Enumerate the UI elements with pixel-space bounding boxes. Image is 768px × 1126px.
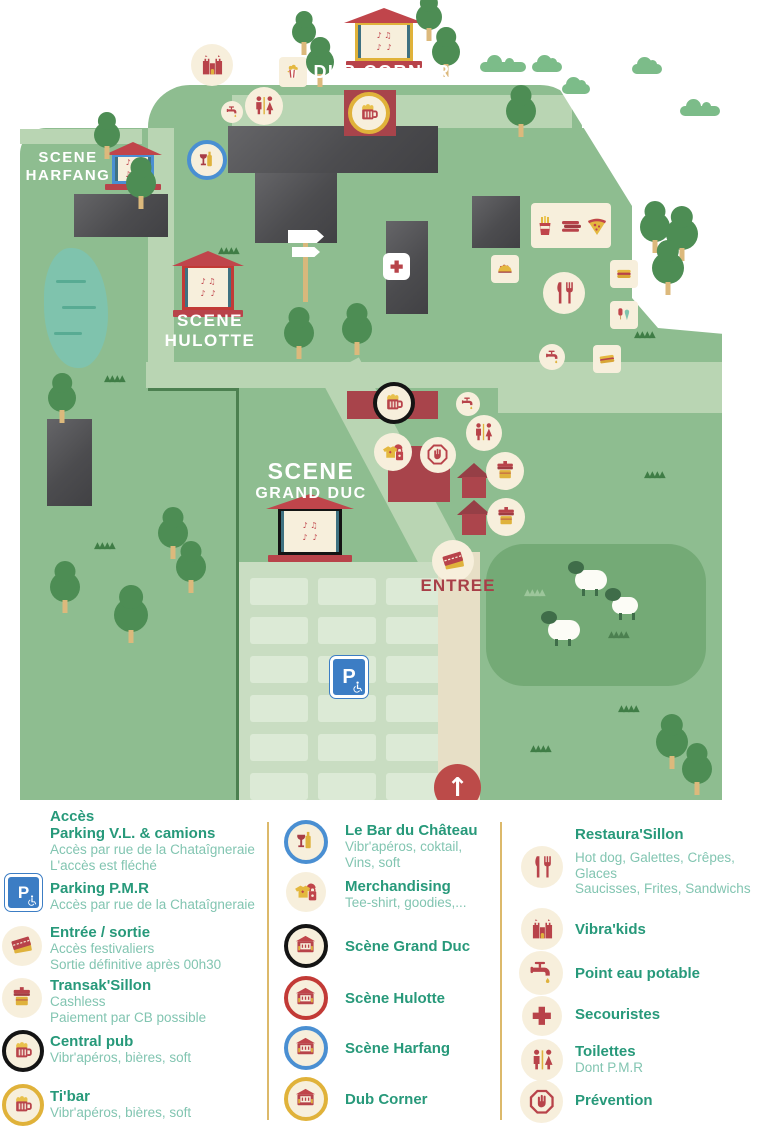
building-barn-left [74,194,168,237]
icecream-icon [615,306,633,324]
stage-grand-duc [266,494,354,562]
ticket-legend-icon [2,926,42,966]
stage-screen [278,508,341,555]
sheep-field [486,544,706,686]
tree [48,384,76,412]
hotdog-stand-icon [610,260,638,288]
sandwich-icon [598,350,616,368]
taco-icon [496,260,514,278]
parking-stall [318,734,376,761]
parking-stall [318,617,376,644]
food-banner [531,203,611,248]
scene-hulotte-label: SCENE HULOTTE [160,311,260,351]
legend-item-water: Point eau potable [575,965,768,982]
tree [652,252,684,284]
hotdog-icon [615,265,633,283]
stage-icon [294,986,317,1009]
cloud [532,62,562,72]
stage-icon [294,1087,317,1110]
wc-icon [252,94,276,118]
legend-divider [267,822,269,1120]
cashless-map-icon [486,452,524,490]
grass-tuft [644,470,664,480]
beer-mug-icon [358,102,380,124]
tap-icon [544,349,561,366]
grass-tuft [618,704,638,714]
path-right-horizontal [498,383,722,413]
pizza-icon [585,214,609,238]
parking-stall [386,656,444,683]
tree [176,552,206,582]
booth-icon [9,985,35,1011]
stage-roof [344,8,424,23]
wc-icon [529,1047,556,1074]
parking-pmr-sign: P [330,656,368,698]
tree [682,754,712,784]
tree [94,122,120,148]
tree [656,726,688,758]
legend-item-secouristes: Secouristes [575,1006,768,1023]
scene-grand-duc-legend-icon [284,924,328,968]
legend-item-scene-harfang: Scène Harfang [345,1040,495,1057]
zone-border-vertical [236,388,239,810]
map-white-right-margin [722,0,768,815]
signpost [288,228,328,302]
stop-hand-icon [426,443,449,466]
merch-icon [293,879,319,905]
legend-item-dub-corner: Dub Corner [345,1091,495,1108]
beer-mug-icon [12,1094,34,1116]
parking-stall [250,617,308,644]
restaura-legend-icon [521,846,563,888]
scene-grand-duc-label: SCENE GRAND DUC [255,458,367,504]
sheep [612,597,638,614]
legend-item-prevention: Prévention [575,1092,768,1109]
signpost-arrow [288,230,324,243]
icecream-stand-icon [610,301,638,329]
dub-corner-label: DUB CORNER [292,62,472,83]
parking-pmr-legend-icon: P [5,874,42,911]
stage-screen [182,265,234,310]
castle-icon [199,52,226,79]
stage-icon [294,1036,317,1059]
parking-stall [250,773,308,800]
parking-stall [318,695,376,722]
tree [342,314,372,344]
water-tap-central-icon [456,392,480,416]
first-aid-map-icon [383,253,410,280]
ticket-icon [440,548,467,575]
sheep [548,620,580,640]
water-tap-food-icon [539,344,565,370]
sheep [575,570,607,590]
castle-icon [529,916,556,943]
stage-screen [355,22,413,61]
red-cross-icon [529,1003,555,1029]
building-top-right [472,196,520,248]
ticket-icon [9,933,35,959]
house [457,500,491,535]
merch-icon [381,440,405,464]
stage-base [268,555,352,562]
wheelchair-icon [350,680,364,694]
tap-icon [460,396,475,411]
vibrakids-legend-icon [521,908,563,950]
legend-item-acces: Accès Parking V.L. & camions Accès par r… [50,808,265,873]
bar-chateau-map-icon [187,140,227,180]
parking-stall [386,695,444,722]
legend-item-scene-grand-duc: Scène Grand Duc [345,938,495,955]
central-pub-legend-icon [2,1030,44,1072]
merchandising-map-icon [374,433,412,471]
legend-item-toilettes: Toilettes Dont P.M.R [575,1043,768,1076]
cutlery-icon [551,280,578,307]
tibar-map-icon [348,92,390,134]
cloud [680,106,720,116]
parking-stall [250,656,308,683]
parking-stall [318,773,376,800]
taco-stand-icon [491,255,519,283]
secouristes-legend-icon [522,996,562,1036]
cloud [562,84,590,94]
prevention-legend-icon [520,1080,563,1123]
beer-mug-icon [12,1040,34,1062]
building-chateau-main [228,126,438,173]
scene-hulotte-legend-icon [284,976,328,1020]
legend-item-restaura-title: Restaura'Sillon [575,826,768,843]
zone-border-horizontal [148,388,239,391]
wine-icon [197,150,217,170]
parking-stall [318,578,376,605]
signpost-pole [303,236,308,302]
toilets-map-icon [245,87,283,125]
central-pub-map-icon [373,382,415,424]
cloud [632,64,662,74]
legend: Accès Parking V.L. & camions Accès par r… [0,800,768,1120]
tap-icon [225,105,239,119]
tap-icon [527,959,555,987]
tree [416,4,442,30]
restaurant-map-icon [543,272,585,314]
grass-tuft [634,330,654,340]
wc-icon [472,421,495,444]
fries-icon [533,214,557,238]
water-tap-map-icon [221,101,243,123]
wheelchair-icon [25,894,38,907]
red-cross-icon [388,258,405,275]
legend-item-transak: Transak'Sillon Cashless Paiement par CB … [50,977,265,1025]
parking-stall [250,578,308,605]
cloud [480,62,526,72]
parking-stall [386,734,444,761]
legend-item-entree-sortie: Entrée / sortie Accès festivaliers Sorti… [50,924,265,972]
legend-item-parking-pmr: Parking P.M.R Accès par rue de la Chataî… [50,880,265,913]
tree [506,96,536,126]
legend-item-scene-hulotte: Scène Hulotte [345,990,495,1007]
tree [126,168,156,198]
legend-item-central-pub: Central pub Vibr'apéros, bières, soft [50,1033,265,1066]
bar-chateau-legend-icon [284,820,328,864]
building-left-bottom [47,419,92,506]
cashless-legend-icon [2,978,42,1018]
legend-item-vibrakids: Vibra'kids [575,921,768,938]
tree [114,598,148,632]
booth-icon [493,459,517,483]
sausages-icon [559,214,583,238]
entree-label: ENTREE [408,576,508,596]
grass-tuft [94,541,114,551]
toilets-central-icon [466,415,502,451]
merchandising-legend-icon [286,872,326,912]
parking-stall [250,695,308,722]
scene-harfang-legend-icon [284,1026,328,1070]
booth-icon [494,505,518,529]
wine-icon [294,830,317,853]
legend-item-bar-chateau: Le Bar du Château Vibr'apéros, coktail, … [345,822,495,870]
grass-tuft [530,744,550,754]
grass-tuft [218,246,238,256]
legend-item-tibar: Ti'bar Vibr'apéros, bières, soft [50,1088,265,1121]
grass-tuft [104,374,124,384]
toilettes-legend-icon [521,1039,563,1081]
signpost-arrow [292,247,320,257]
prevention-map-icon [420,437,456,473]
grass-tuft [608,630,628,640]
cutlery-icon [529,854,556,881]
parking-stall [250,734,308,761]
dub-corner-legend-icon [284,1077,328,1121]
legend-item-restaura-subs: Hot dog, Galettes, Crêpes, Glaces Saucis… [575,850,768,897]
legend-item-merchandising: Merchandising Tee-shirt, goodies,... [345,878,495,911]
water-legend-icon [519,951,563,995]
stage-dub-corner [344,8,424,68]
tree [50,572,80,602]
stage-hulotte [172,251,244,317]
stop-hand-icon [528,1088,556,1116]
grass-tuft [524,588,544,598]
sandwich-stand-icon [593,345,621,373]
tree [284,318,314,348]
legend-divider [500,822,502,1120]
stage-icon [294,934,317,957]
beer-mug-icon [383,392,405,414]
cashless-map-icon [487,498,525,536]
festival-map: P DUB CORNER SCENE HARFANG [0,0,768,815]
parking-stall [386,617,444,644]
scene-harfang-label: SCENE HARFANG [22,149,114,184]
vibrakids-map-icon [191,44,233,86]
